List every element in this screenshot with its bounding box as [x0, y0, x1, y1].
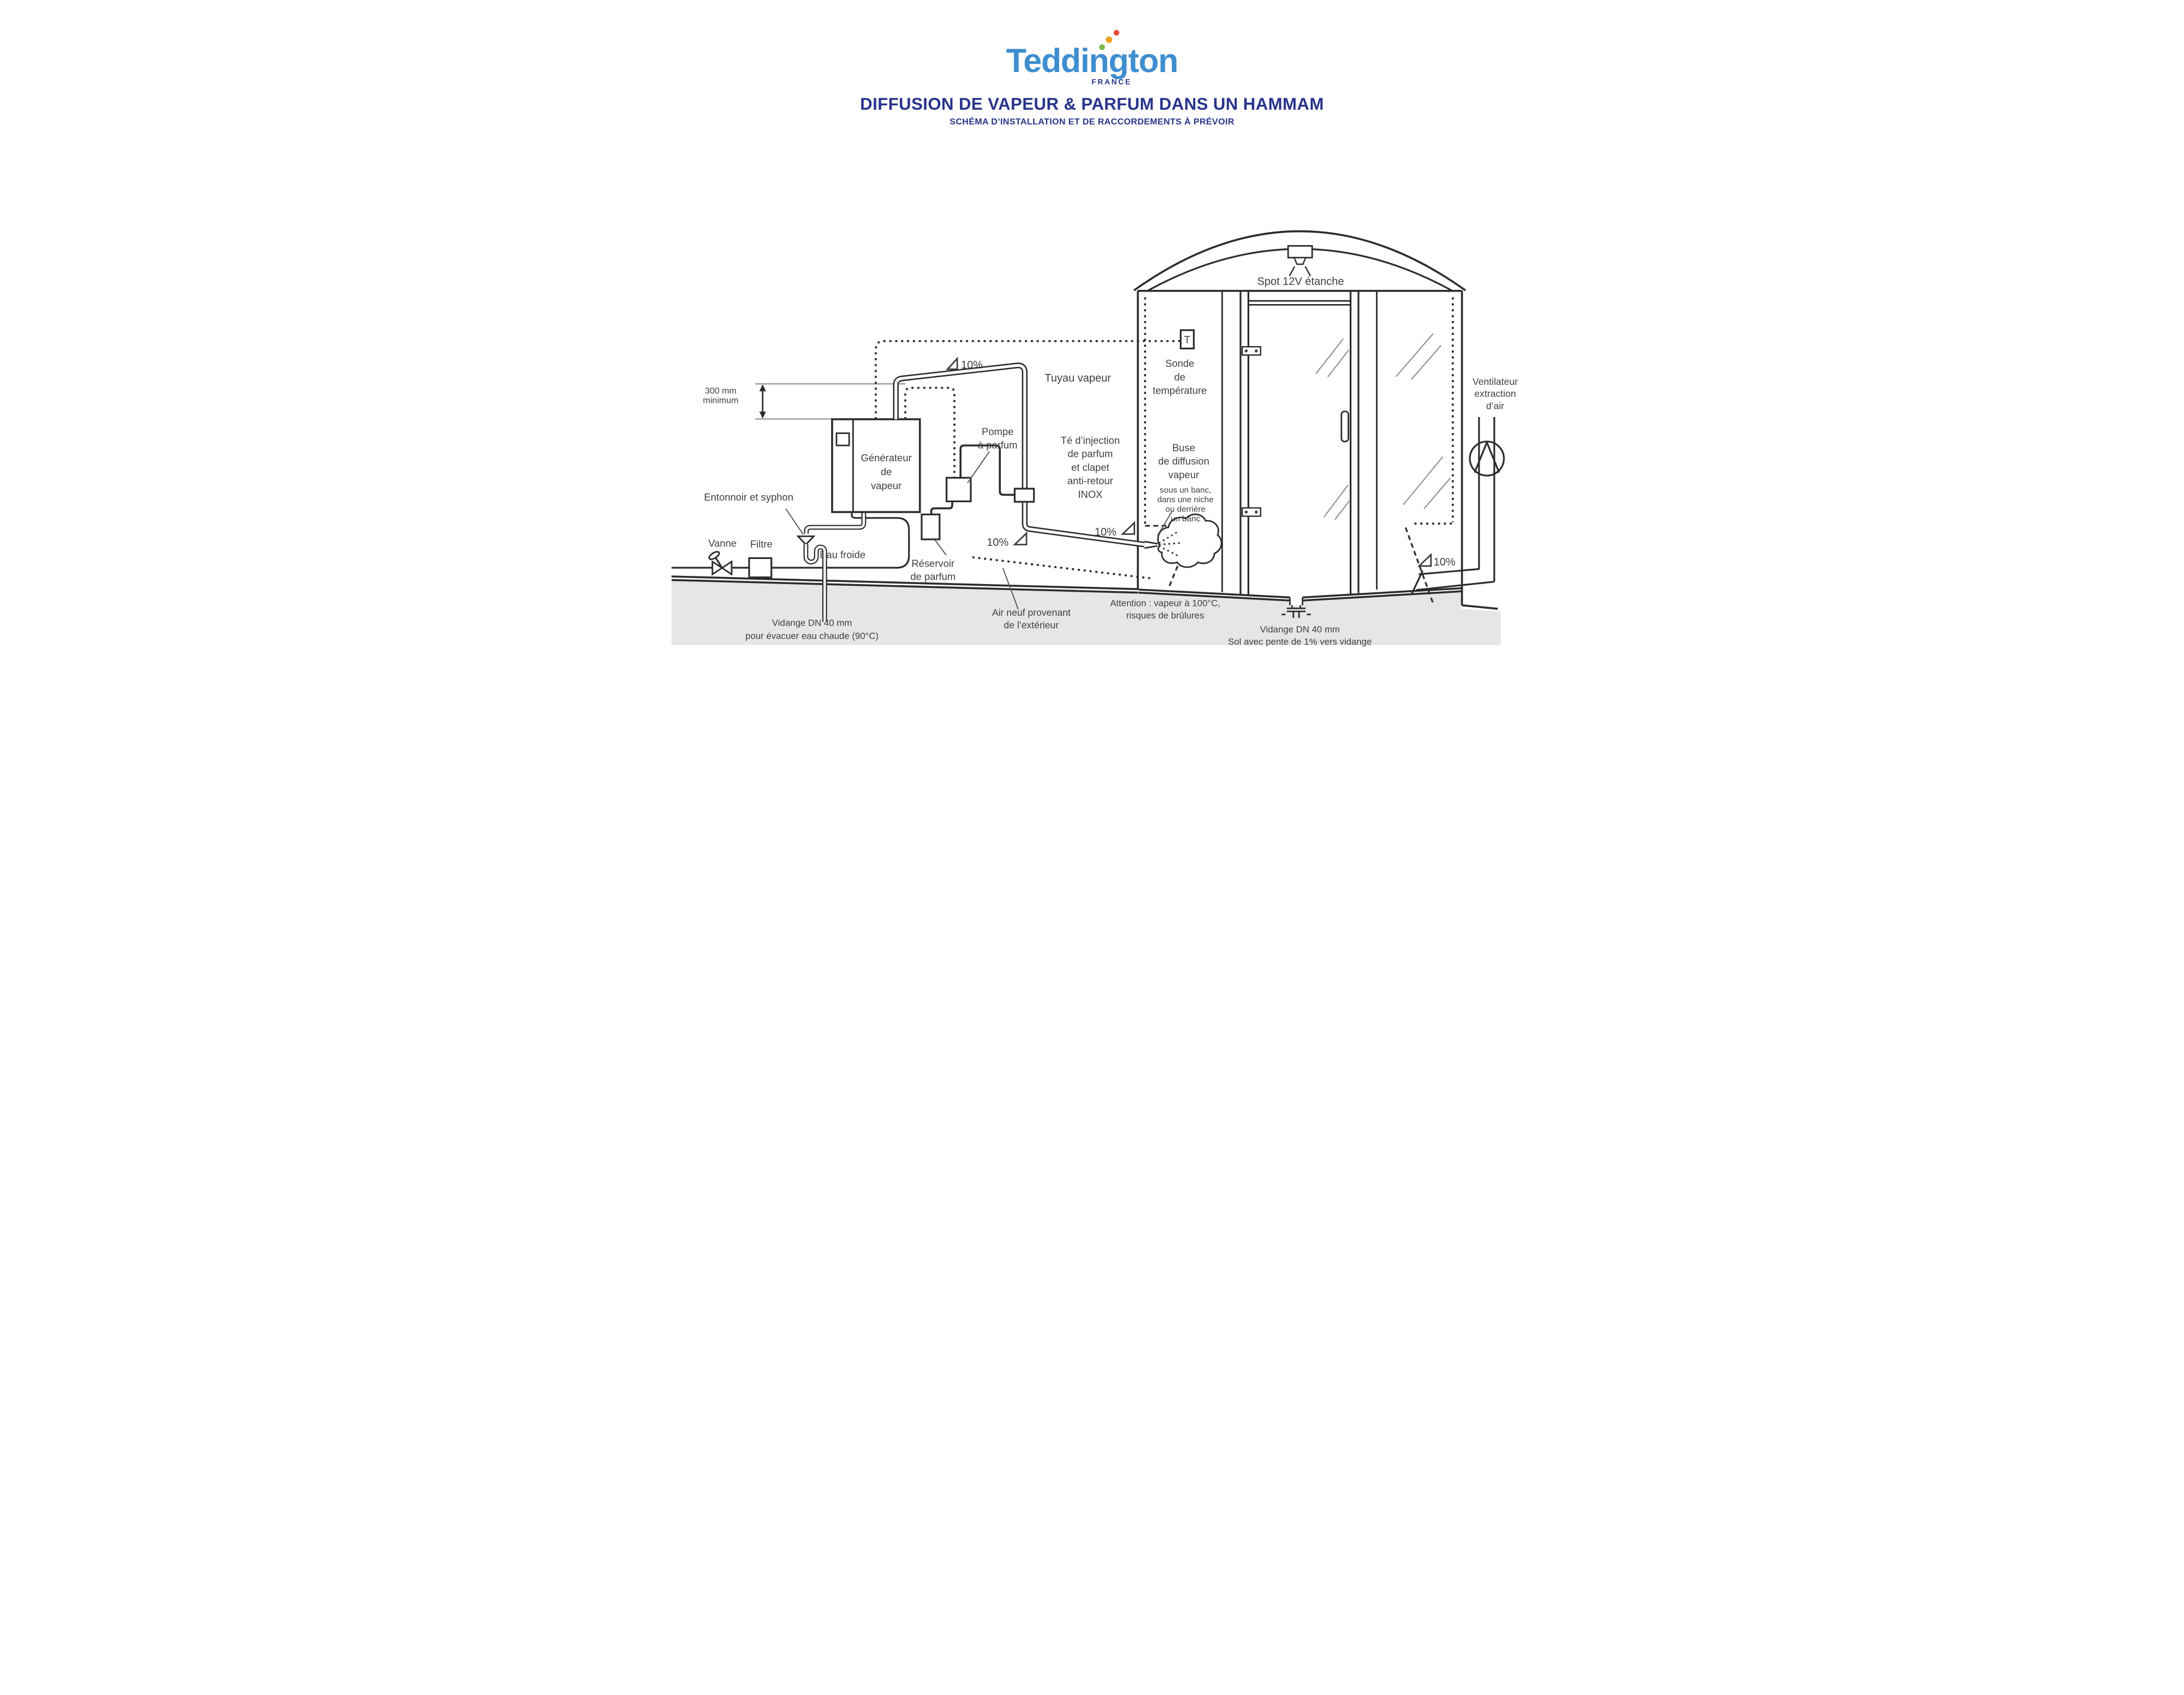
- door-handle: [1342, 412, 1349, 442]
- te-label-3: et clapet: [1071, 461, 1109, 473]
- valve: [708, 550, 732, 574]
- funnel-icon: [798, 536, 814, 544]
- injection-tee-fitting: [1014, 489, 1034, 502]
- attention-label-2: risques de brûlures: [1126, 610, 1204, 621]
- ventilateur-label-2: extraction: [1474, 388, 1516, 399]
- cold-water-line: Vanne Filtre Eau froide: [672, 512, 909, 578]
- slope-triangle-icon: [1014, 533, 1026, 545]
- tuyau-vapeur-label: Tuyau vapeur: [1044, 372, 1111, 384]
- reservoir-label-1: Réservoir: [911, 557, 954, 569]
- perfume-pump: [947, 478, 971, 501]
- hinge-screw-icon: [1245, 510, 1248, 514]
- air-neuf-label-1: Air neuf provenant: [992, 607, 1071, 618]
- sonde-label-1: Sonde: [1165, 358, 1194, 369]
- extract-duct-top: [1419, 569, 1479, 574]
- valve-body-icon: [722, 562, 732, 574]
- steam-nozzle-top: [1144, 542, 1158, 544]
- dim-label-1: 300 mm: [705, 386, 737, 396]
- slope-triangle-icon: [1123, 523, 1135, 534]
- logo-dot-green-icon: [1099, 44, 1105, 50]
- dim-arrow-down-icon: [759, 412, 766, 419]
- spot-ray-icon: [1290, 266, 1295, 276]
- hinge-screw-icon: [1255, 349, 1258, 353]
- generator-display: [836, 433, 849, 445]
- brand-logo: Teddington FRANCE: [1006, 30, 1178, 86]
- door-glass-reflection: [1335, 501, 1349, 520]
- vidange-gauche-2: pour évacuer eau chaude (90°C): [745, 631, 879, 641]
- filter-box: [749, 558, 771, 577]
- spot-housing: [1288, 246, 1312, 258]
- sonde-label-2: de: [1174, 371, 1185, 383]
- generator-drain-pipe-core: [806, 512, 864, 534]
- steam-diffusion: Buse de diffusion vapeur sous un banc, d…: [1145, 442, 1221, 587]
- vidange-droite-2: Sol avec pente de 1% vers vidange: [1228, 637, 1372, 647]
- generator-label-2: de: [881, 466, 892, 477]
- pompe-label-2: à parfum: [978, 439, 1018, 451]
- logo-dot-orange-icon: [1106, 37, 1112, 43]
- entonnoir-leader: [786, 509, 803, 534]
- page-subtitle: SCHÉMA D’INSTALLATION ET DE RACCORDEMENT…: [949, 116, 1234, 127]
- hammam-installation-diagram: Teddington FRANCE DIFFUSION DE VAPEUR & …: [655, 0, 1529, 678]
- perfume-circuit: Pompe à parfum Réservoir de parfum Té d’…: [910, 426, 1120, 582]
- door-hinge-top: [1242, 347, 1261, 355]
- ventilateur-label-1: Ventilateur: [1473, 376, 1518, 387]
- cloud-floor-dashed: [1169, 566, 1178, 587]
- vidange-gauche-1: Vidange DN 40 mm: [772, 617, 852, 628]
- generator-label-3: vapeur: [871, 480, 901, 491]
- buse-sub-4: un banc: [1171, 514, 1200, 524]
- buse-label-2: de diffusion: [1158, 455, 1209, 467]
- sonde-label-3: température: [1153, 385, 1207, 396]
- buse-label-3: vapeur: [1168, 469, 1199, 480]
- slope-label-2: 10%: [987, 537, 1008, 549]
- pompe-leader: [968, 451, 989, 483]
- buse-sub-2: dans une niche: [1158, 495, 1214, 504]
- slope-label-3: 10%: [1095, 526, 1117, 538]
- reservoir-leader: [935, 540, 946, 555]
- entonnoir-label: Entonnoir et syphon: [704, 491, 793, 503]
- buse-label-1: Buse: [1172, 442, 1195, 453]
- spot-light: [1288, 246, 1312, 276]
- slope-label-1: 10%: [961, 359, 983, 371]
- dim-label-2: minimum: [703, 396, 739, 405]
- hinge-screw-icon: [1245, 349, 1248, 353]
- air-neuf-dotted-line: [972, 557, 1154, 579]
- spot-bulb-icon: [1294, 258, 1305, 264]
- te-label-4: anti-retour: [1067, 475, 1113, 486]
- side-glass-reflection: [1424, 478, 1450, 509]
- door-glass-reflection: [1316, 339, 1343, 374]
- buse-sub-3: ou derrière: [1165, 505, 1205, 514]
- dim-arrow-up-icon: [759, 384, 766, 391]
- control-lines: T Sonde de température: [876, 330, 1207, 478]
- spot-label: Spot 12V étanche: [1257, 276, 1344, 288]
- ventilateur-label-3: d’air: [1486, 401, 1504, 412]
- te-label-1: Té d’injection: [1061, 435, 1120, 446]
- logo-country: FRANCE: [1091, 78, 1131, 86]
- slope-label-4: 10%: [1434, 556, 1456, 568]
- perfume-suction-pipe: [931, 501, 952, 514]
- spot-ray-icon: [1305, 266, 1310, 276]
- buse-sub-1: sous un banc,: [1160, 485, 1212, 495]
- water-pipe: [672, 512, 909, 568]
- side-glass-reflection: [1396, 334, 1433, 377]
- slope-triangle-icon: [1419, 555, 1431, 566]
- side-glass-reflection: [1403, 457, 1443, 505]
- vanne-label: Vanne: [708, 538, 737, 549]
- temperature-sensor-letter: T: [1184, 335, 1191, 346]
- pompe-label-1: Pompe: [982, 426, 1013, 437]
- perfume-reservoir: [922, 514, 940, 539]
- sensor-control-line: [876, 341, 1180, 419]
- floor-line-right-outer: [1462, 605, 1498, 609]
- air-neuf-label-2: de l’extérieur: [1004, 620, 1059, 631]
- slope-triangle-icon: [947, 359, 957, 370]
- te-label-2: de parfum: [1067, 448, 1113, 460]
- steam-generator: Générateur de vapeur: [832, 419, 920, 512]
- logo-text: Teddington: [1006, 42, 1178, 79]
- reservoir-label-2: de parfum: [910, 570, 956, 582]
- door-glass-reflection: [1324, 485, 1348, 517]
- valve-handle-icon: [708, 550, 721, 561]
- te-label-5: INOX: [1078, 489, 1102, 500]
- generator-drain-pipe: [806, 512, 864, 534]
- door-hinge-bottom: [1242, 508, 1261, 516]
- generator-label-1: Générateur: [861, 452, 912, 463]
- vidange-droite-1: Vidange DN 40 mm: [1260, 624, 1340, 634]
- valve-body-icon: [713, 562, 722, 574]
- side-glass-reflection: [1411, 346, 1441, 379]
- hinge-screw-icon: [1255, 510, 1258, 514]
- document-page: Teddington FRANCE DIFFUSION DE VAPEUR & …: [655, 0, 1529, 678]
- page-title: DIFFUSION DE VAPEUR & PARFUM DANS UN HAM…: [860, 94, 1324, 114]
- filtre-label: Filtre: [750, 538, 773, 550]
- attention-label-1: Attention : vapeur à 100°C,: [1110, 598, 1220, 608]
- steam-nozzle-bottom: [1144, 546, 1158, 548]
- logo-dot-red-icon: [1114, 30, 1119, 35]
